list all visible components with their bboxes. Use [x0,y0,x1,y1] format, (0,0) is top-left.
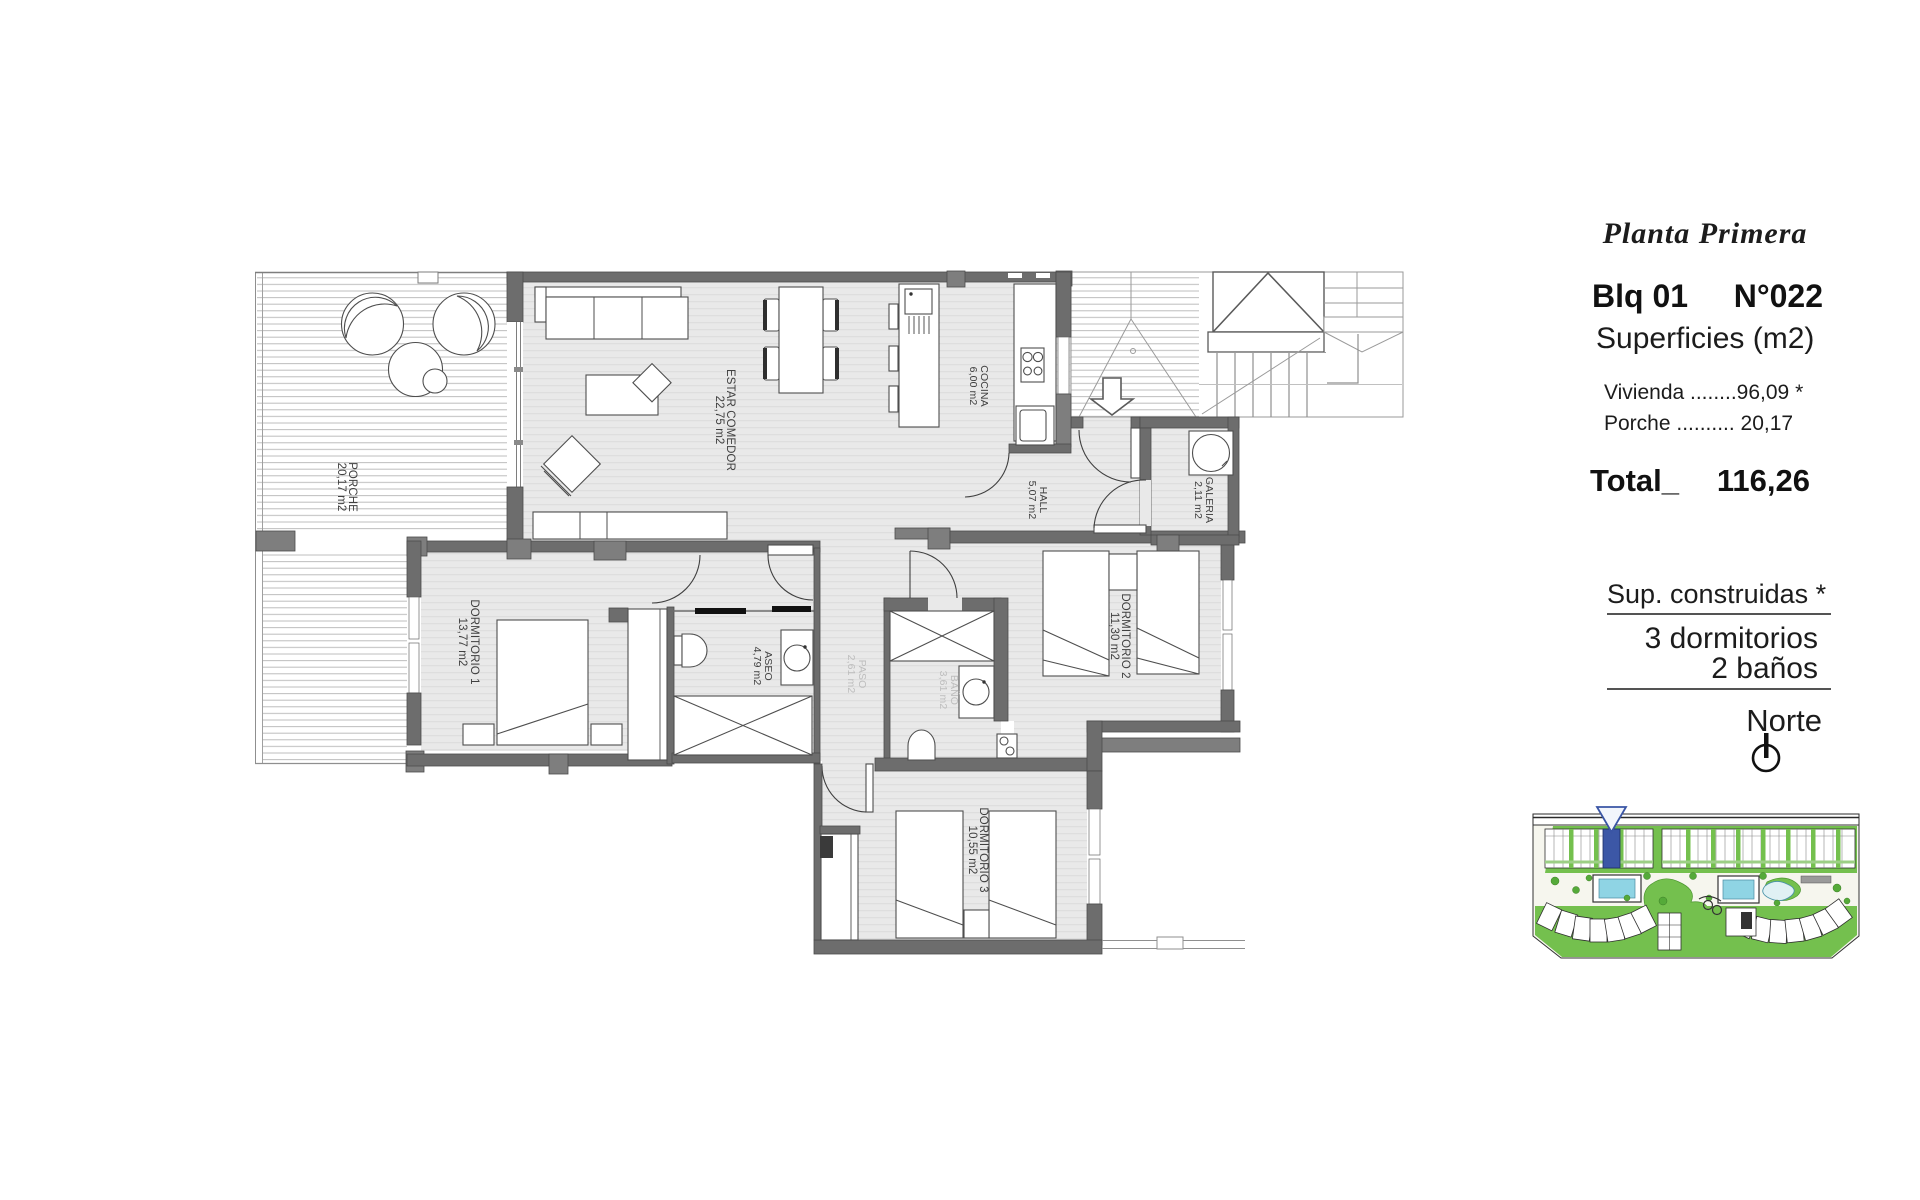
svg-text:BAÑO3,61 m2: BAÑO3,61 m2 [937,671,961,710]
svg-text:Planta Primera: Planta Primera [1602,217,1808,250]
svg-text:Superficies (m2): Superficies (m2) [1596,322,1814,355]
svg-text:N°022: N°022 [1734,278,1823,314]
svg-text:PASO2,61 m2: PASO2,61 m2 [845,655,868,694]
svg-text:2 baños: 2 baños [1711,652,1818,685]
svg-text:Porche .......... 20,17: Porche .......... 20,17 [1604,412,1793,435]
svg-text:116,26: 116,26 [1717,463,1810,498]
svg-text:3 dormitorios: 3 dormitorios [1645,622,1818,655]
svg-text:Sup. construidas *: Sup. construidas * [1607,579,1827,609]
svg-text:ASEO4,79 m2: ASEO4,79 m2 [751,647,774,686]
svg-text:PORCHE20,17 m2: PORCHE20,17 m2 [335,462,358,512]
svg-text:GALERIA2,11 m2: GALERIA2,11 m2 [1192,477,1215,523]
svg-text:Vivienda ........96,09 *: Vivienda ........96,09 * [1604,381,1803,404]
svg-text:Total_: Total_ [1590,463,1680,498]
svg-text:Blq 01: Blq 01 [1592,278,1688,314]
svg-text:COCINA6,00 m2: COCINA6,00 m2 [967,365,990,406]
svg-text:Norte: Norte [1746,703,1822,738]
